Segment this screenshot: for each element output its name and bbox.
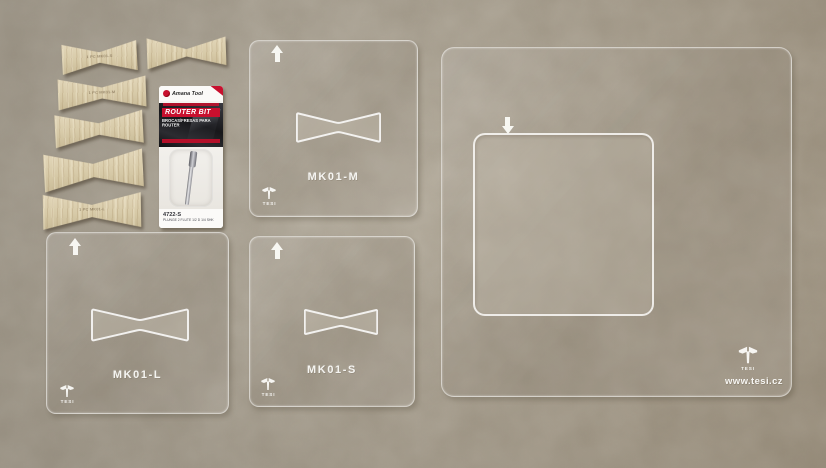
template-label: MK01-S [250, 364, 414, 376]
tesi-logo-icon [261, 185, 277, 201]
wooden-bowtie-inlay [43, 148, 144, 192]
red-stripe [162, 139, 220, 143]
package-title: ROUTER BIT [162, 108, 220, 117]
bowtie-cutout [304, 308, 378, 336]
wooden-bowtie-inlay [54, 110, 144, 149]
package-subtitle: BROCAS/FRESAS PARA ROUTER [162, 119, 219, 127]
wooden-bowtie-inlay [146, 36, 226, 70]
router-bit-package: Amana Tool ROUTER BIT BROCAS/FRESAS PARA… [159, 86, 223, 228]
template-mk01-l: MK01-L TESI [46, 232, 229, 414]
wood-grain: 1 PC MK01-S [61, 40, 138, 75]
arrow-stem [506, 117, 511, 126]
amana-logo-icon [163, 90, 170, 97]
up-arrow-icon [271, 242, 283, 260]
tesi-logo: TESI [728, 344, 768, 375]
wood-grain: 1 PC MK01-M [57, 75, 146, 110]
tesi-logo-icon [260, 376, 276, 392]
red-text-line [163, 103, 219, 106]
corner-ribbon [207, 86, 223, 99]
wood-grain [146, 36, 226, 70]
bowtie-etched-label: 1 PC MK01-L [68, 207, 115, 212]
tesi-logo-icon [737, 344, 759, 366]
square-cutout [473, 133, 654, 316]
up-arrow-icon [271, 45, 283, 63]
template-label: MK01-L [47, 369, 228, 381]
tesi-logo-text: TESI [736, 366, 759, 371]
part-number: 4722-S [163, 211, 205, 217]
arrow-head [271, 45, 283, 53]
down-arrow-icon [502, 116, 514, 134]
spec-line: PLUNGE 2 FLUTE 1/2 D 1/4 SHK [163, 218, 188, 222]
arrow-stem [275, 250, 280, 259]
tesi-logo-text: TESI [263, 201, 276, 206]
wood-grain [43, 148, 144, 192]
product-photo-scene: 1 PC MK01-S 1 PC MK01-M 1 PC MK01-L Aman… [0, 0, 826, 468]
wood-grain [54, 110, 144, 149]
bowtie-etched-label: 1 PC MK01-S [81, 53, 117, 59]
template-square-large: TESI www.tesi.cz [441, 47, 792, 397]
arrow-stem [73, 246, 78, 255]
tesi-logo-icon [59, 383, 75, 399]
template-mk01-m: MK01-M TESI [249, 40, 418, 217]
tesi-logo: TESI [258, 185, 280, 210]
tesi-logo: TESI [56, 383, 78, 408]
arrow-head [69, 238, 81, 246]
arrow-head [271, 242, 283, 250]
package-brand: Amana Tool [172, 90, 203, 96]
tesi-logo-text: TESI [262, 392, 275, 397]
arrow-stem [275, 53, 280, 62]
template-mk01-s: MK01-S TESI [249, 236, 415, 407]
bowtie-cutout [296, 111, 381, 144]
tesi-logo: TESI [257, 376, 279, 401]
blister-window [159, 147, 223, 209]
package-header: Amana Tool [159, 86, 223, 101]
bowtie-etched-label: 1 PC MK01-M [81, 89, 123, 95]
package-bottom-label: 4722-S PLUNGE 2 FLUTE 1/2 D 1/4 SHK [159, 209, 223, 228]
website-url: www.tesi.cz [725, 376, 783, 387]
template-label: MK01-M [250, 171, 417, 183]
wooden-bowtie-inlay: 1 PC MK01-L [43, 192, 142, 230]
wood-grain: 1 PC MK01-L [43, 192, 142, 230]
tesi-logo-text: TESI [61, 399, 74, 404]
wooden-bowtie-inlay: 1 PC MK01-M [57, 75, 146, 110]
wooden-bowtie-inlay: 1 PC MK01-S [61, 40, 138, 75]
package-photo-panel: ROUTER BIT BROCAS/FRESAS PARA ROUTER [159, 103, 223, 147]
bowtie-cutout [91, 307, 189, 343]
up-arrow-icon [69, 238, 81, 256]
